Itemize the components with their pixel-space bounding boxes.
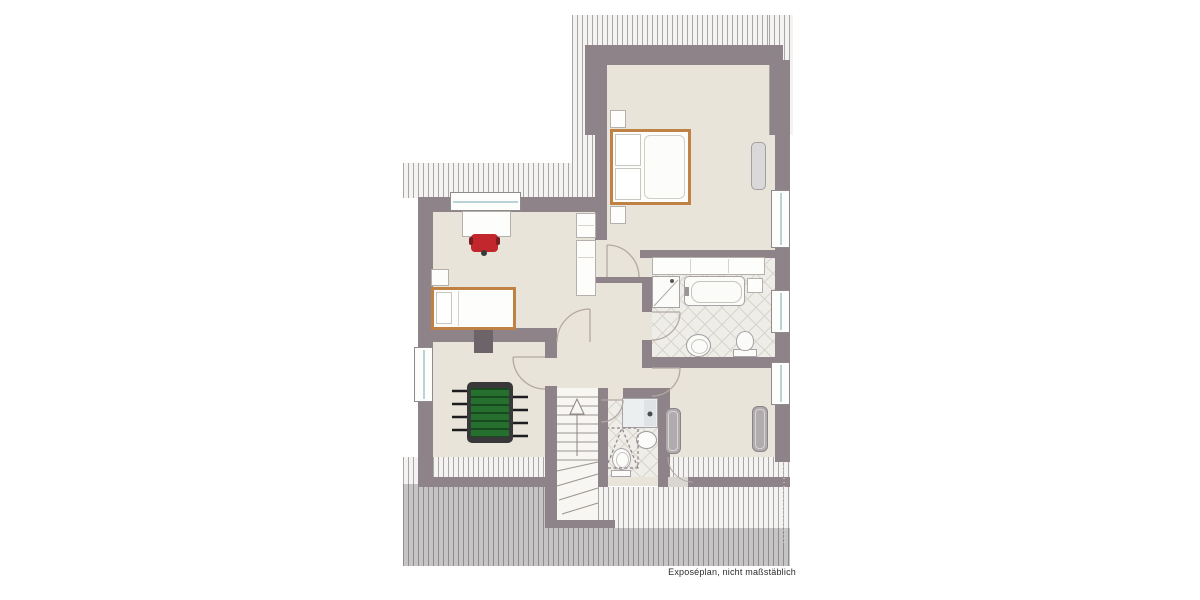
- shower-head-icon: [648, 412, 653, 417]
- sloped-ceiling-dashed-outline: [606, 428, 638, 468]
- floor-plan: Exposéplan, nicht maßstäblich: [0, 0, 1200, 600]
- door-arcs: [513, 245, 693, 482]
- staircase-linework: [557, 397, 598, 514]
- eaves-access-arc: [668, 457, 693, 482]
- children-door-arc: [557, 309, 590, 342]
- foosball-rod-handles: [452, 391, 528, 436]
- shower-head-icon: [670, 279, 674, 283]
- plan-caption: Exposéplan, nicht maßstäblich: [600, 567, 796, 577]
- playroom-door-arc: [513, 357, 545, 389]
- southeast-room-door-arc: [652, 368, 680, 396]
- stair-winders: [557, 462, 598, 514]
- bathroom-door-arc: [652, 312, 680, 340]
- wc-door-arc: [601, 400, 623, 422]
- bedroom-door-arc: [607, 245, 639, 277]
- shower-glass-line: [654, 280, 678, 306]
- plan-linework: [0, 0, 1200, 600]
